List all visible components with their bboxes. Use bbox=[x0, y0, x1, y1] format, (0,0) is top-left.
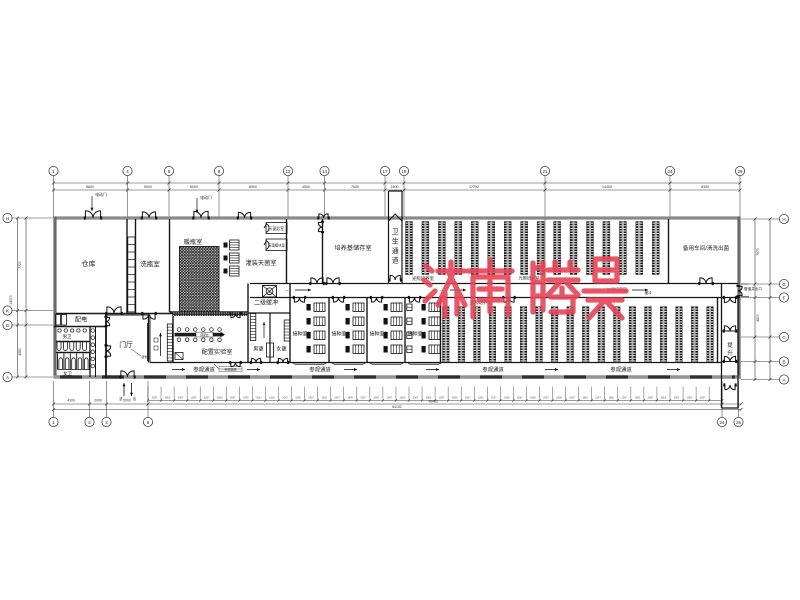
svg-text:18: 18 bbox=[401, 169, 407, 174]
svg-text:14400: 14400 bbox=[602, 185, 612, 189]
svg-text:一: 一 bbox=[285, 289, 289, 293]
svg-text:2067: 2067 bbox=[674, 396, 680, 399]
svg-text:1800: 1800 bbox=[295, 396, 301, 399]
svg-text:1800: 1800 bbox=[191, 396, 197, 399]
svg-text:2067: 2067 bbox=[569, 396, 575, 399]
svg-text:调配台: 调配台 bbox=[200, 333, 209, 337]
svg-text:1800: 1800 bbox=[452, 396, 458, 399]
svg-text:1800: 1800 bbox=[608, 396, 614, 399]
svg-text:配置实验室: 配置实验室 bbox=[202, 348, 233, 356]
svg-text:2067: 2067 bbox=[334, 396, 340, 399]
svg-text:2067: 2067 bbox=[178, 396, 184, 399]
svg-text:服务台: 服务台 bbox=[141, 354, 150, 359]
svg-text:4500: 4500 bbox=[302, 185, 310, 189]
svg-text:H: H bbox=[782, 217, 785, 222]
svg-text:F: F bbox=[783, 295, 786, 300]
svg-text:B: B bbox=[782, 359, 785, 364]
svg-text:7970: 7970 bbox=[756, 248, 760, 256]
svg-text:2067: 2067 bbox=[387, 396, 393, 399]
svg-text:1800: 1800 bbox=[217, 396, 223, 399]
svg-text:17: 17 bbox=[382, 169, 388, 174]
svg-text:1800: 1800 bbox=[478, 396, 484, 399]
svg-text:1800: 1800 bbox=[582, 396, 588, 399]
svg-text:2067: 2067 bbox=[700, 396, 706, 399]
svg-text:卫: 卫 bbox=[392, 228, 399, 236]
svg-text:1800: 1800 bbox=[530, 396, 536, 399]
svg-text:参观通道: 参观通道 bbox=[309, 366, 331, 374]
svg-text:14500: 14500 bbox=[9, 295, 13, 305]
svg-text:配电: 配电 bbox=[75, 316, 87, 324]
svg-text:H: H bbox=[6, 216, 9, 221]
svg-text:参观通道: 参观通道 bbox=[610, 366, 632, 374]
svg-text:21: 21 bbox=[542, 169, 548, 174]
svg-text:2067: 2067 bbox=[491, 396, 497, 399]
svg-text:2067: 2067 bbox=[204, 396, 210, 399]
svg-text:A: A bbox=[782, 377, 785, 382]
svg-text:高温模块室: 高温模块室 bbox=[268, 243, 286, 248]
svg-text:参观通道: 参观通道 bbox=[193, 366, 215, 374]
svg-text:26: 26 bbox=[737, 169, 743, 174]
svg-text:5000: 5000 bbox=[123, 399, 131, 403]
svg-text:2067: 2067 bbox=[361, 396, 367, 399]
svg-text:参观通道: 参观通道 bbox=[482, 366, 504, 374]
svg-text:48452: 48452 bbox=[428, 400, 438, 404]
svg-text:1800: 1800 bbox=[243, 396, 249, 399]
svg-text:7720: 7720 bbox=[18, 261, 22, 269]
svg-text:洗瓶室: 洗瓶室 bbox=[140, 259, 160, 268]
svg-text:5000: 5000 bbox=[144, 185, 152, 189]
svg-text:1800: 1800 bbox=[504, 396, 510, 399]
svg-text:2067: 2067 bbox=[543, 396, 549, 399]
svg-text:灌装天菌室: 灌装天菌室 bbox=[246, 259, 277, 267]
svg-text:2000: 2000 bbox=[94, 399, 102, 403]
svg-text:G: G bbox=[782, 282, 786, 287]
svg-text:2067: 2067 bbox=[465, 396, 471, 399]
svg-text:女更: 女更 bbox=[276, 345, 287, 353]
svg-text:2067: 2067 bbox=[230, 396, 236, 399]
svg-text:备用车间/清洗出菌: 备用车间/清洗出菌 bbox=[683, 244, 730, 252]
svg-text:提: 提 bbox=[727, 341, 733, 349]
svg-text:8800: 8800 bbox=[86, 185, 94, 189]
svg-text:1800: 1800 bbox=[165, 396, 171, 399]
svg-text:电动门: 电动门 bbox=[95, 192, 107, 197]
svg-text:女卫: 女卫 bbox=[63, 370, 72, 377]
svg-text:1800: 1800 bbox=[556, 396, 562, 399]
svg-text:缓冲: 缓冲 bbox=[645, 290, 652, 295]
svg-text:1800: 1800 bbox=[374, 396, 380, 399]
svg-text:升: 升 bbox=[727, 349, 733, 357]
svg-text:天菌后室: 天菌后室 bbox=[269, 226, 284, 231]
svg-text:通: 通 bbox=[392, 246, 399, 255]
svg-text:2067: 2067 bbox=[413, 396, 419, 399]
svg-text:2067: 2067 bbox=[256, 396, 262, 399]
svg-text:二级缓冲: 二级缓冲 bbox=[254, 299, 278, 307]
svg-text:2067: 2067 bbox=[517, 396, 523, 399]
svg-text:2067: 2067 bbox=[622, 396, 628, 399]
svg-text:1500: 1500 bbox=[391, 185, 399, 189]
svg-text:1800: 1800 bbox=[687, 396, 693, 399]
svg-text:5: 5 bbox=[269, 290, 271, 294]
svg-text:7600: 7600 bbox=[351, 185, 359, 189]
svg-text:4380: 4380 bbox=[18, 348, 22, 356]
svg-text:2067: 2067 bbox=[595, 396, 601, 399]
svg-text:8300: 8300 bbox=[701, 185, 709, 189]
svg-text:25: 25 bbox=[736, 420, 742, 425]
svg-text:1800: 1800 bbox=[321, 396, 327, 399]
svg-text:2067: 2067 bbox=[648, 396, 654, 399]
svg-text:生: 生 bbox=[392, 237, 399, 246]
svg-text:门厅: 门厅 bbox=[119, 340, 133, 349]
svg-text:培养基储存室: 培养基储存室 bbox=[334, 244, 371, 252]
svg-text:电动门: 电动门 bbox=[200, 195, 212, 200]
svg-text:男更: 男更 bbox=[253, 346, 264, 353]
svg-text:12: 12 bbox=[285, 169, 291, 174]
svg-text:2067: 2067 bbox=[282, 396, 288, 399]
svg-text:64152: 64152 bbox=[392, 405, 402, 409]
svg-text:8000: 8000 bbox=[249, 185, 257, 189]
svg-text:1800: 1800 bbox=[661, 396, 667, 399]
svg-text:1800: 1800 bbox=[400, 396, 406, 399]
svg-text:2067: 2067 bbox=[152, 396, 158, 399]
svg-text:4300: 4300 bbox=[67, 399, 75, 403]
svg-text:1800: 1800 bbox=[635, 396, 641, 399]
svg-text:A: A bbox=[6, 375, 9, 380]
svg-text:K: K bbox=[6, 308, 9, 313]
svg-text:2067: 2067 bbox=[308, 396, 314, 399]
svg-text:6000: 6000 bbox=[190, 185, 198, 189]
svg-text:管道井出口: 管道井出口 bbox=[744, 286, 762, 291]
svg-text:1800: 1800 bbox=[269, 396, 275, 399]
svg-text:2067: 2067 bbox=[439, 396, 445, 399]
svg-text:4800: 4800 bbox=[756, 314, 760, 322]
svg-text:仓库: 仓库 bbox=[82, 259, 96, 268]
svg-text:14: 14 bbox=[322, 169, 328, 174]
svg-text:暖瓶室: 暖瓶室 bbox=[184, 238, 203, 246]
svg-text:24: 24 bbox=[667, 169, 673, 174]
svg-text:24: 24 bbox=[719, 420, 725, 425]
svg-text:1800: 1800 bbox=[347, 396, 353, 399]
svg-text:17752: 17752 bbox=[469, 185, 479, 189]
svg-text:道: 道 bbox=[392, 256, 399, 265]
